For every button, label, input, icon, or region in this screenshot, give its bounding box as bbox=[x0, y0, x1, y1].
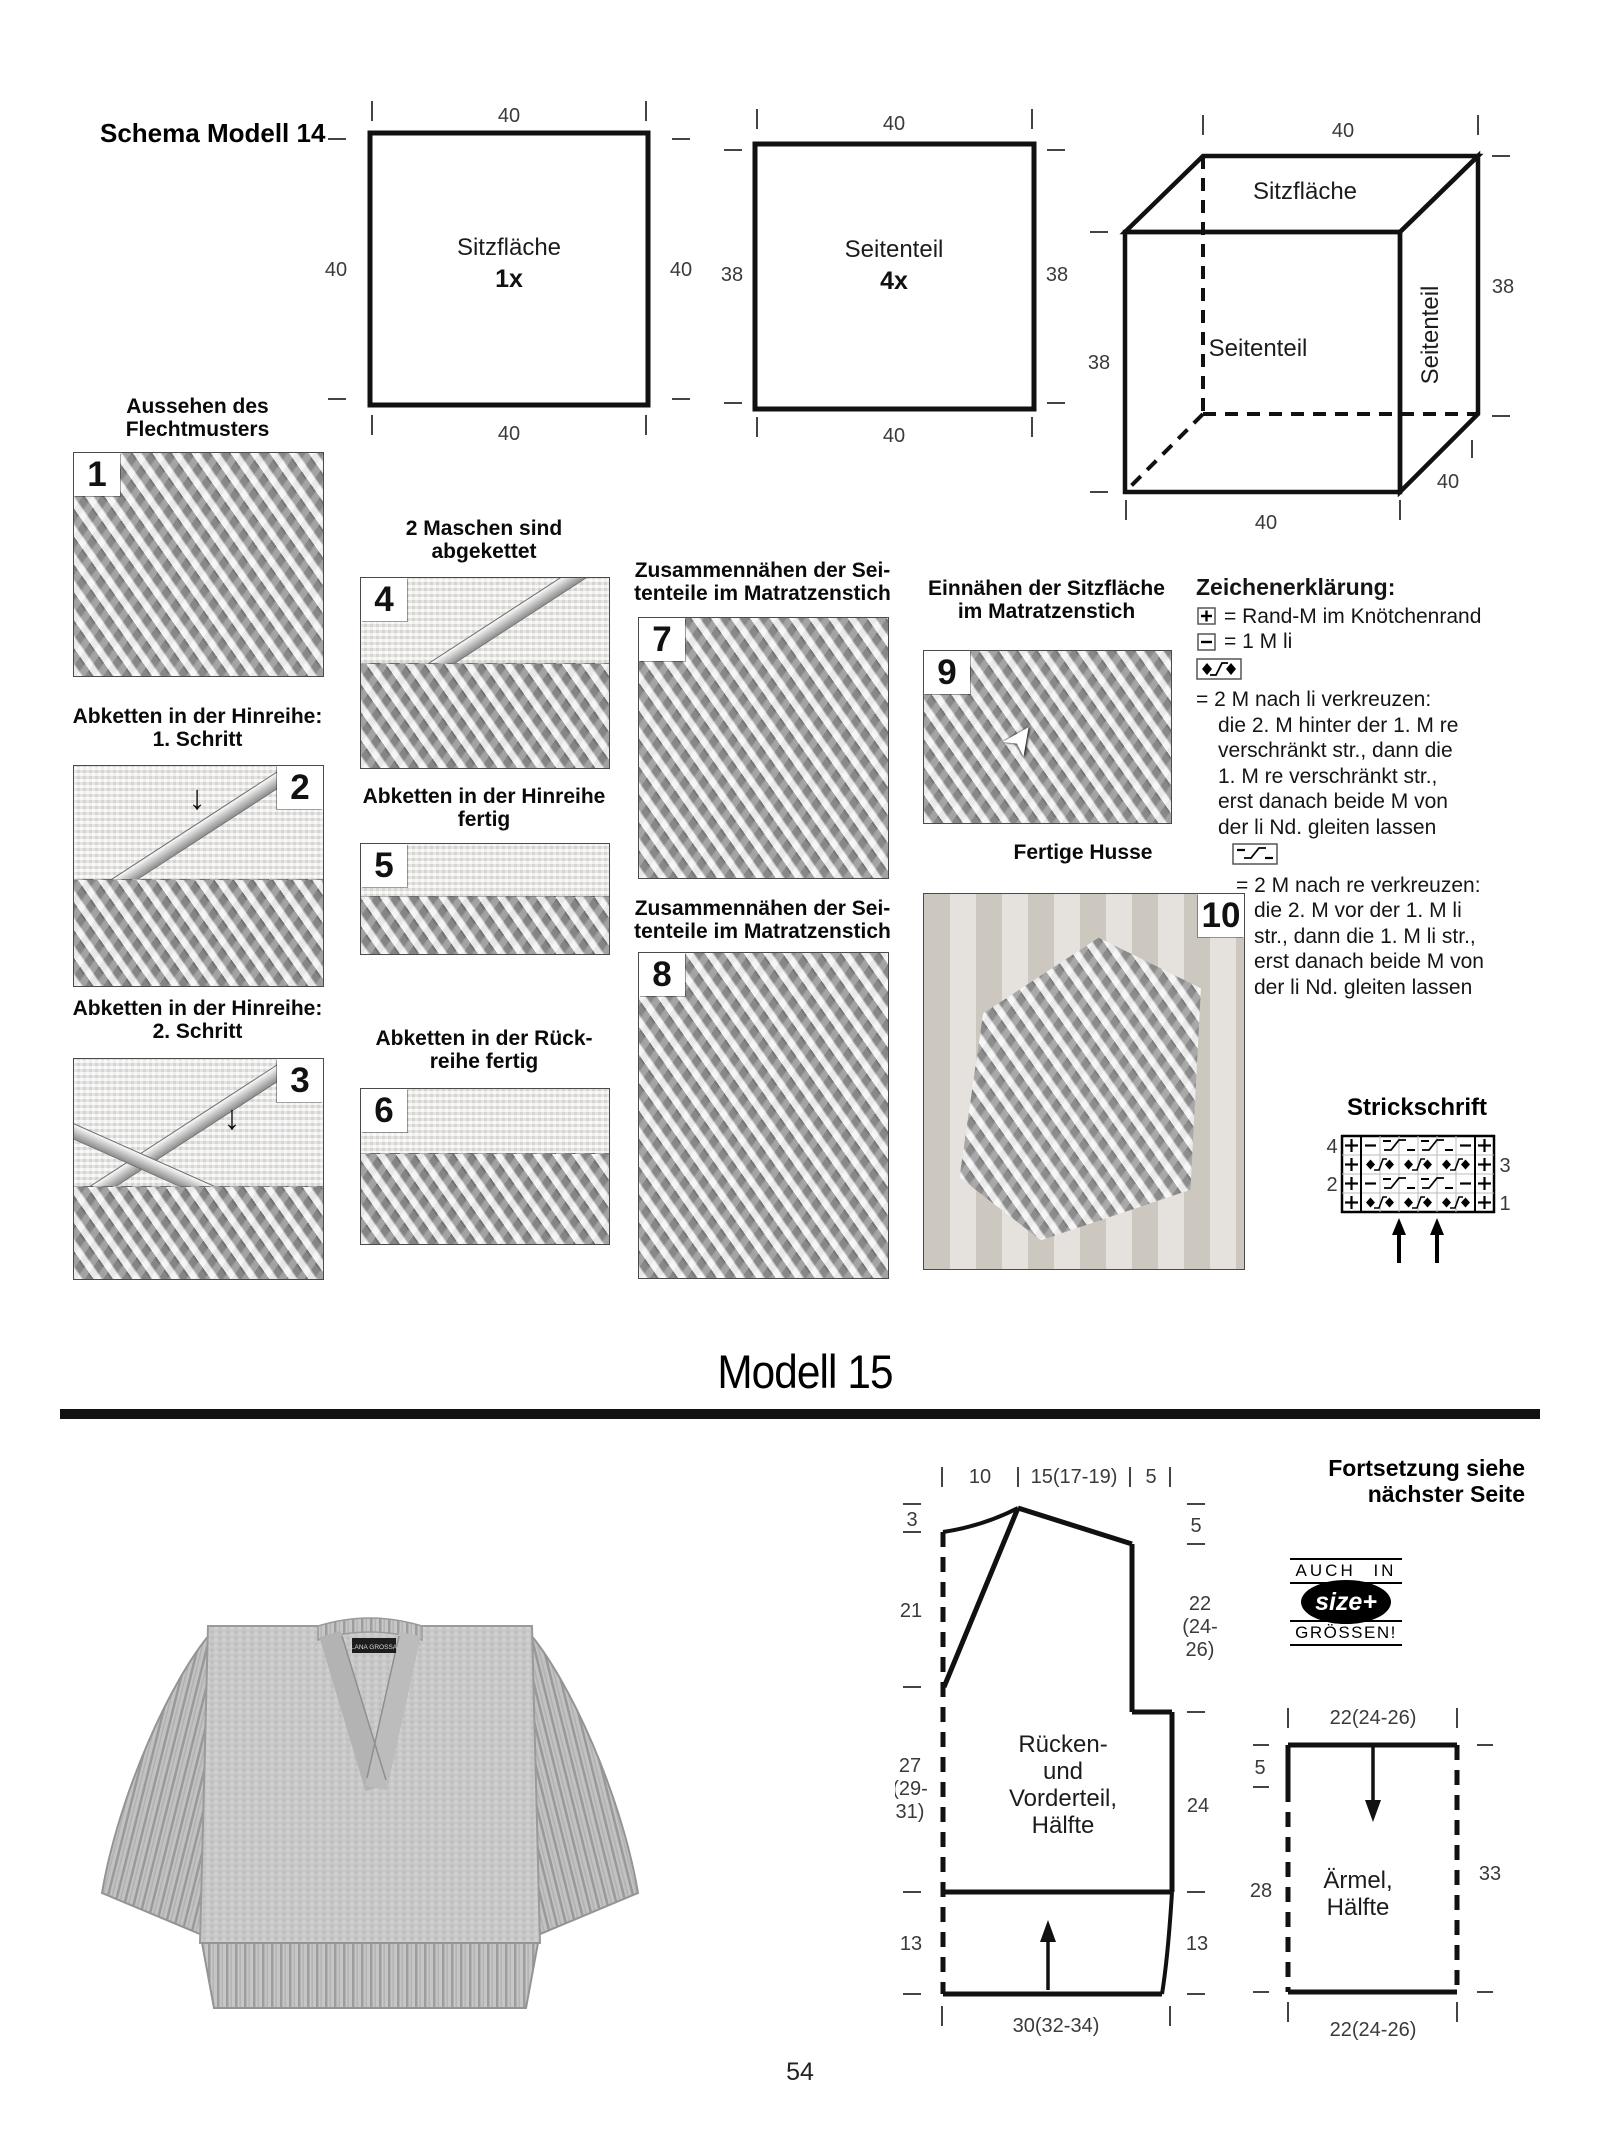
legend-title: Zeichenerklärung: bbox=[1196, 575, 1550, 601]
knitted-pouf bbox=[946, 932, 1208, 1247]
cube-diagram: Sitzfläche Seitenteil Seitenteil 40 38 3… bbox=[1088, 115, 1514, 534]
cube-front-label: Seitenteil bbox=[1209, 335, 1308, 362]
page-number: 54 bbox=[0, 2058, 1600, 2087]
sleeve-left-dim-1: 5 bbox=[1254, 1757, 1265, 1779]
braid-texture bbox=[361, 1153, 609, 1244]
body-right-dim-4: 13 bbox=[1186, 1933, 1208, 1955]
step-photo-2: ↓ 2 bbox=[73, 765, 324, 987]
piece-count: 4x bbox=[880, 267, 908, 295]
continuation-note: Fortsetzung siehe nächster Seite bbox=[1240, 1455, 1525, 1507]
body-top-dim-2: 15(17-19) bbox=[1031, 1466, 1118, 1488]
dim-bottom: 40 bbox=[883, 425, 905, 447]
dim-right: 38 bbox=[1046, 264, 1068, 286]
strickschrift-title: Strickschrift bbox=[1312, 1094, 1522, 1122]
legend-item-lines: die 2. M hinter der 1. M re verschränkt … bbox=[1218, 713, 1550, 841]
sleeve-piece-schematic: 22(24-26) 5 28 33 22(24-26) Ärmel, Hälft… bbox=[1245, 1700, 1525, 2050]
photo-number: 4 bbox=[361, 578, 407, 621]
photo-number: 9 bbox=[924, 651, 970, 694]
sweater-photo: LANA GROSSA bbox=[90, 1438, 650, 2018]
dim-left: 38 bbox=[721, 264, 743, 286]
step-photo-4: 4 bbox=[360, 577, 610, 769]
body-bottom-dim: 30(32-34) bbox=[1013, 2015, 1100, 2037]
cursor-arrow-icon: ➤ bbox=[991, 712, 1048, 766]
dim-left: 40 bbox=[325, 259, 347, 281]
body-top-dim-3: 5 bbox=[1145, 1466, 1156, 1488]
body-left-dim-3b: (29- bbox=[895, 1778, 928, 1800]
cube-dim-bottom: 40 bbox=[1255, 512, 1277, 534]
piece-count: 1x bbox=[495, 265, 523, 293]
cube-dim-left: 38 bbox=[1088, 352, 1110, 374]
sleeve-right-dim: 33 bbox=[1479, 1863, 1501, 1885]
braid-texture bbox=[74, 879, 323, 986]
photo-number: 1 bbox=[74, 453, 120, 496]
step-caption-9: Einnähen der Sitzfläche im Matratzenstic… bbox=[918, 578, 1175, 623]
down-arrow-icon: ↓ bbox=[189, 779, 206, 818]
size-plus-badge: AUCH IN size+ GRÖSSEN! bbox=[1290, 1558, 1402, 1646]
step-caption-7: Zusammennähen der Sei- tenteile im Matra… bbox=[630, 560, 895, 605]
photo-number: 6 bbox=[361, 1089, 407, 1132]
section-divider bbox=[60, 1409, 1540, 1419]
body-label-1: Rücken- bbox=[1018, 1731, 1107, 1758]
photo-number: 3 bbox=[277, 1059, 323, 1102]
legend-item: = Rand-M im Knötchenrand bbox=[1196, 604, 1550, 630]
legend-item-text: = Rand-M im Knötchenrand bbox=[1224, 604, 1481, 630]
step-photo-8: 8 bbox=[638, 952, 889, 1279]
body-left-dim-3a: 27 bbox=[899, 1755, 921, 1777]
body-left-dim-3c: 31) bbox=[896, 1801, 925, 1823]
down-arrow-icon: ↓ bbox=[223, 1099, 240, 1138]
magazine-page: Schema Modell 14 40 40 40 40 Sitzfläche … bbox=[0, 0, 1600, 2133]
sleeve-label-1: Ärmel, bbox=[1323, 1867, 1392, 1894]
legend-item-head: = 2 M nach li verkreuzen: bbox=[1196, 687, 1550, 713]
step-caption-4: 2 Maschen sind abgekettet bbox=[360, 518, 608, 563]
size-plus-logo: size+ bbox=[1301, 1580, 1391, 1624]
step-photo-5: 5 bbox=[360, 843, 610, 955]
legend-item-text: = 1 M li bbox=[1224, 629, 1292, 655]
body-left-dim-4: 13 bbox=[900, 1933, 922, 1955]
body-right-dim-2c: 26) bbox=[1186, 1639, 1215, 1661]
step-caption-3: Abketten in der Hinreihe: 2. Schritt bbox=[60, 998, 335, 1043]
repeat-arrows bbox=[1392, 1218, 1444, 1263]
row-label-2: 2 bbox=[1326, 1174, 1337, 1196]
photo-number: 8 bbox=[639, 953, 685, 996]
schema-modell14-heading: Schema Modell 14 bbox=[100, 118, 325, 149]
row-label-4: 4 bbox=[1326, 1136, 1337, 1158]
step-caption-6: Abketten in der Rück- reihe fertig bbox=[352, 1028, 616, 1073]
modell15-title: Modell 15 bbox=[180, 1344, 1431, 1399]
photo-number: 2 bbox=[277, 766, 323, 809]
dim-bottom: 40 bbox=[498, 423, 520, 445]
body-right-dim-2a: 22 bbox=[1189, 1593, 1211, 1615]
step-caption-5: Abketten in der Hinreihe fertig bbox=[348, 786, 620, 831]
piece-label: Seitenteil bbox=[845, 236, 944, 263]
photo-number: 7 bbox=[639, 618, 685, 661]
sleeve-bottom-dim: 22(24-26) bbox=[1330, 2019, 1417, 2041]
schema-modell14-diagram: 40 40 40 40 Sitzfläche 1x 40 38 38 bbox=[320, 95, 1550, 555]
body-right-dim-3: 24 bbox=[1187, 1795, 1209, 1817]
cube-side-label: Seitenteil bbox=[1417, 286, 1444, 385]
cube-top-label: Sitzfläche bbox=[1253, 178, 1357, 205]
step-caption-10: Fertige Husse bbox=[923, 842, 1243, 865]
step-photo-1: 1 bbox=[73, 452, 324, 677]
legend-item: = 1 M li bbox=[1196, 629, 1550, 655]
sleeve-left-dim-2: 28 bbox=[1250, 1880, 1272, 1902]
braid-texture bbox=[361, 896, 609, 954]
cube-dim-depth: 40 bbox=[1437, 471, 1459, 493]
braid-texture bbox=[74, 1186, 323, 1279]
boxed-minus-icon bbox=[1196, 631, 1218, 653]
cross-left-2M-icon bbox=[1196, 657, 1244, 681]
row-label-3: 3 bbox=[1499, 1155, 1510, 1177]
symbol-legend: Zeichenerklärung: = Rand-M im Knötchenra… bbox=[1196, 575, 1550, 1000]
step-caption-2: Abketten in der Hinreihe: 1. Schritt bbox=[60, 706, 335, 751]
cube-dim-top: 40 bbox=[1332, 120, 1354, 142]
body-piece-schematic: 10 15(17-19) 5 3 21 27 (29- 31) 13 5 22 … bbox=[895, 1452, 1230, 2047]
sweater-tag-text: LANA GROSSA bbox=[351, 1644, 398, 1651]
body-right-dim-1: 5 bbox=[1190, 1515, 1201, 1537]
braid-texture bbox=[361, 663, 609, 769]
step-photo-9: ➤ 9 bbox=[923, 650, 1172, 824]
step-photo-3: ↓ 3 bbox=[73, 1058, 324, 1280]
body-label-3: Vorderteil, bbox=[1009, 1785, 1117, 1812]
body-left-dim-1: 3 bbox=[906, 1509, 917, 1531]
piece-seitenteil: 40 38 38 40 Seitenteil 4x bbox=[721, 109, 1068, 447]
cross-right-2M-icon bbox=[1232, 842, 1280, 866]
legend-item-head: = 2 M nach re verkreuzen: bbox=[1236, 873, 1550, 899]
boxed-plus-icon bbox=[1196, 605, 1218, 627]
step-photo-7: 7 bbox=[638, 617, 889, 879]
body-left-dim-2: 21 bbox=[900, 1600, 922, 1622]
sleeve-top-dim: 22(24-26) bbox=[1330, 1707, 1417, 1729]
strickschrift-chart: 4 2 3 1 bbox=[1312, 1128, 1522, 1273]
cube-dim-right: 38 bbox=[1492, 276, 1514, 298]
step-photo-6: 6 bbox=[360, 1088, 610, 1245]
dim-top: 40 bbox=[883, 113, 905, 135]
body-label-4: Hälfte bbox=[1032, 1812, 1095, 1839]
photo-number: 5 bbox=[361, 844, 407, 887]
row-label-1: 1 bbox=[1499, 1193, 1510, 1215]
body-label-2: und bbox=[1043, 1758, 1083, 1785]
piece-label: Sitzfläche bbox=[457, 234, 561, 261]
step-caption-1: Aussehen des Flechtmusters bbox=[73, 396, 322, 441]
sleeve-label-2: Hälfte bbox=[1327, 1894, 1390, 1921]
piece-sitzflaeche: 40 40 40 40 Sitzfläche 1x bbox=[325, 101, 692, 445]
body-right-dim-2b: (24- bbox=[1182, 1616, 1218, 1638]
step-caption-8: Zusammennähen der Sei- tenteile im Matra… bbox=[630, 898, 895, 943]
dim-top: 40 bbox=[498, 105, 520, 127]
body-top-dim-1: 10 bbox=[969, 1466, 991, 1488]
legend-item-lines: die 2. M vor der 1. M li str., dann die … bbox=[1254, 898, 1550, 1000]
dim-right: 40 bbox=[670, 259, 692, 281]
